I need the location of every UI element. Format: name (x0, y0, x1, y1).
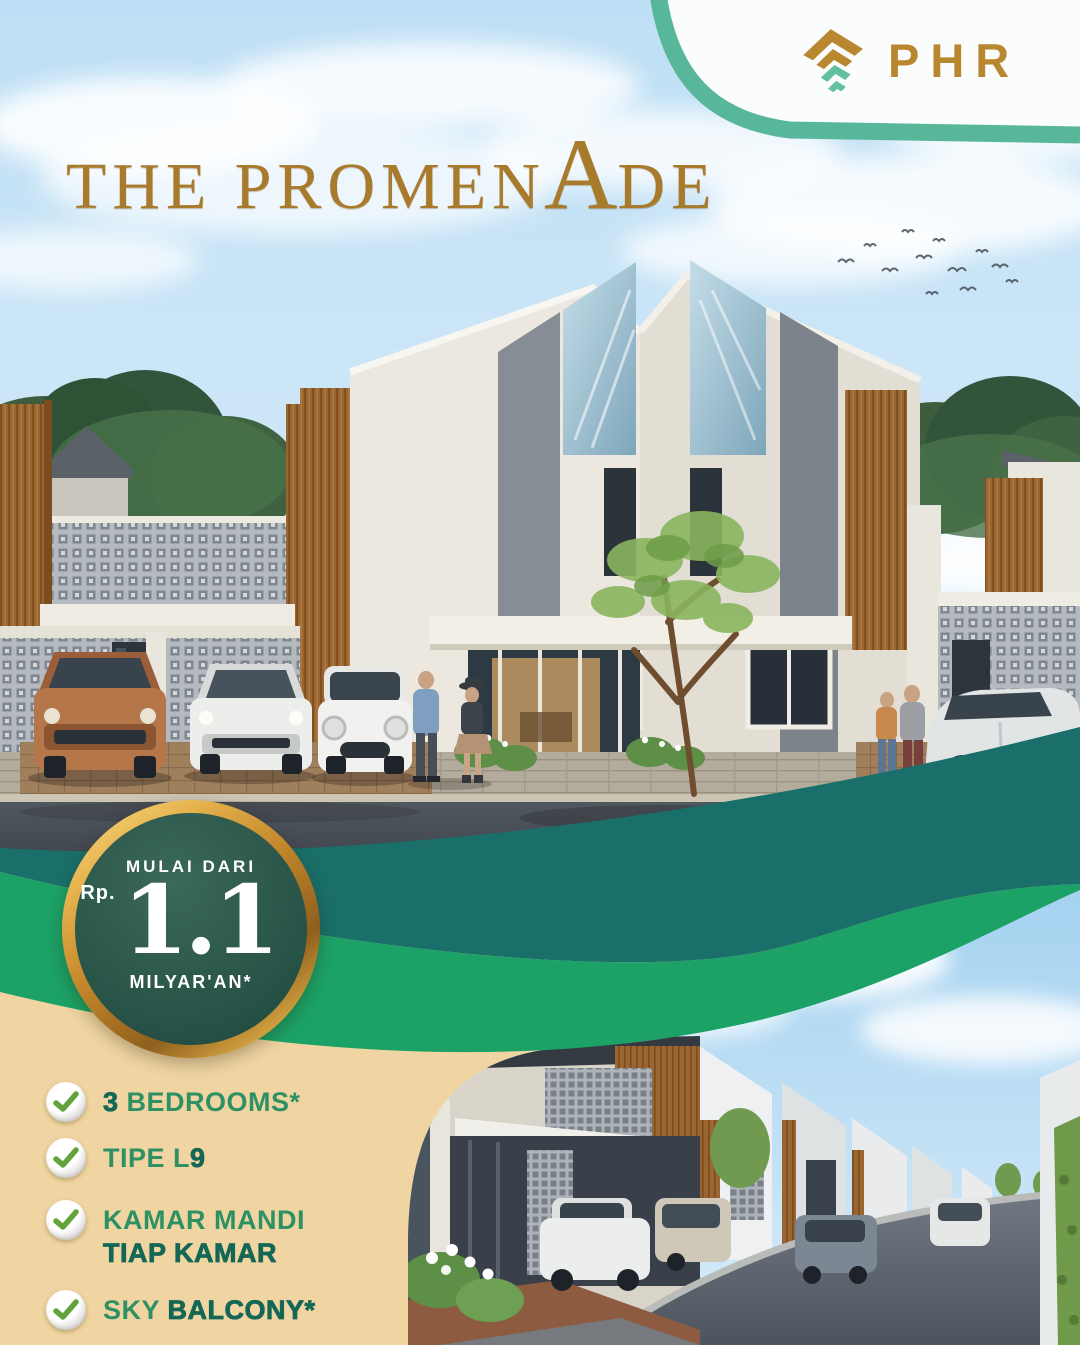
feature-row-tipe: TIPE L9 (46, 1138, 316, 1178)
check-icon (46, 1290, 86, 1330)
title-tail: DE (618, 149, 718, 225)
phr-logo: PHR (796, 22, 1020, 98)
feature-list: 3 BEDROOMS* TIPE L9 KAMAR MANDITIAP KAMA… (46, 1082, 316, 1330)
feature-row-kamar-mandi: KAMAR MANDITIAP KAMAR (46, 1200, 316, 1270)
price-badge-face: MULAI DARI Rp. 1.1 MILYAR'AN* (75, 813, 307, 1045)
phr-tree-icon (796, 22, 872, 98)
feature-text: SKY BALCONY* (103, 1290, 316, 1327)
promenade-flyer: THE PROMENADE PHR (0, 0, 1080, 1345)
title-lead: THE PROMEN (66, 149, 546, 225)
project-title: THE PROMENADE (66, 116, 718, 233)
price-badge: MULAI DARI Rp. 1.1 MILYAR'AN* (62, 800, 320, 1058)
badge-currency: Rp. (80, 884, 115, 902)
phr-logo-text: PHR (888, 33, 1020, 88)
check-icon (46, 1082, 86, 1122)
check-icon (46, 1200, 86, 1240)
feature-text: 3 BEDROOMS* (103, 1082, 301, 1119)
check-icon (46, 1138, 86, 1178)
badge-amount-row: Rp. 1.1 (122, 877, 275, 964)
phr-logo-card: PHR (650, 0, 1080, 155)
feature-row-sky-balcony: SKY BALCONY* (46, 1290, 316, 1330)
badge-amount: 1.1 (122, 865, 275, 976)
feature-text: TIPE L9 (103, 1138, 206, 1175)
feature-text: KAMAR MANDITIAP KAMAR (103, 1200, 305, 1270)
title-big-letter: A (544, 116, 620, 233)
feature-row-bedrooms: 3 BEDROOMS* (46, 1082, 316, 1122)
